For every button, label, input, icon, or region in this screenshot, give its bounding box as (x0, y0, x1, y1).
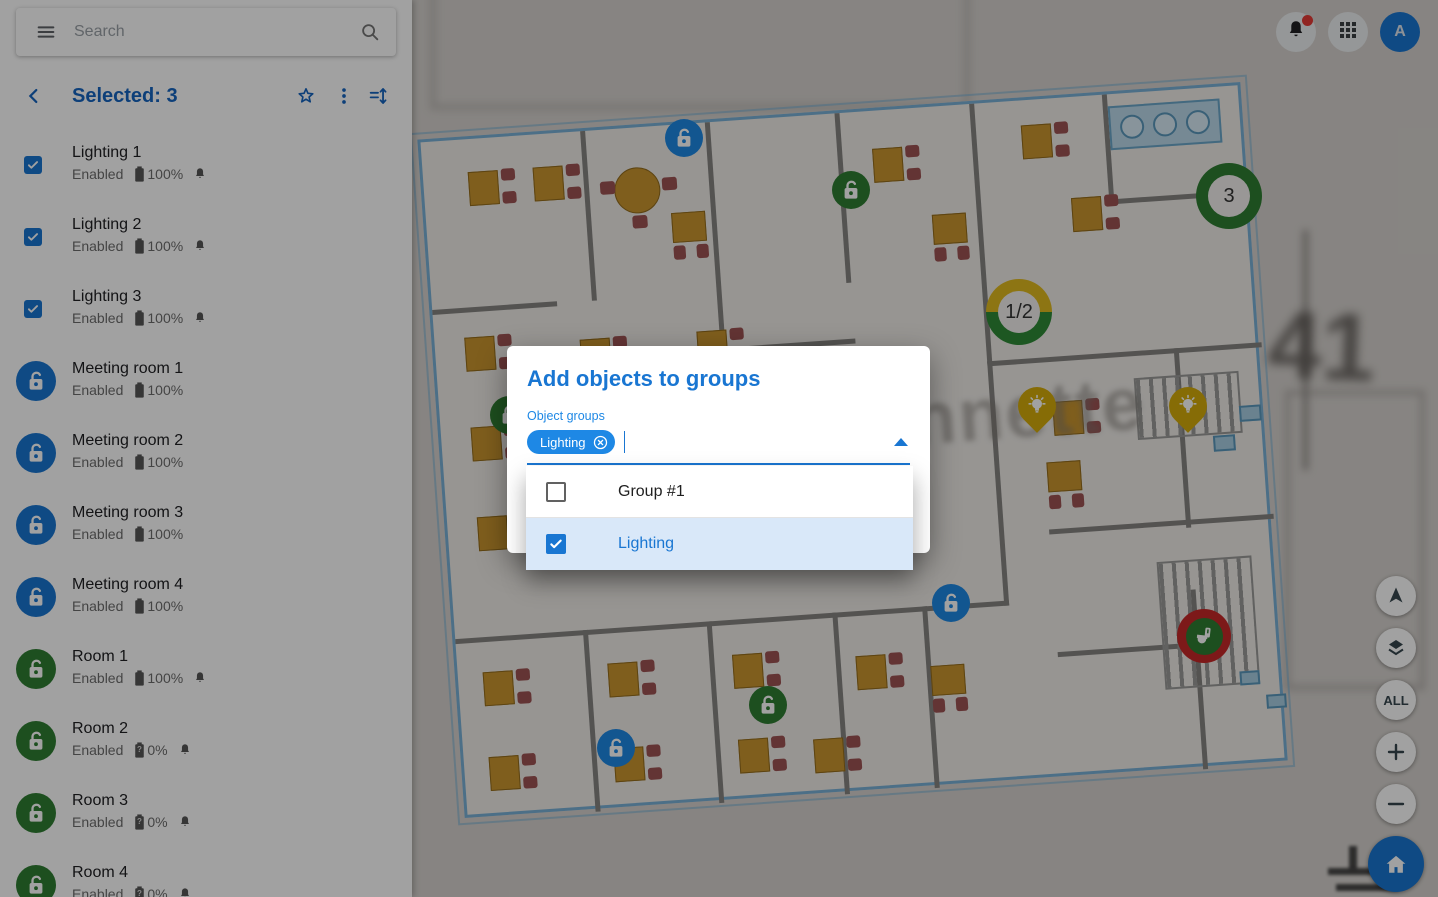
group-options: Group #1Lighting (526, 466, 913, 570)
group-option[interactable]: Group #1 (526, 466, 913, 518)
group-chip-lighting[interactable]: Lighting (527, 430, 615, 454)
option-checkbox[interactable] (546, 534, 566, 554)
group-chips: Lighting (527, 428, 625, 456)
object-groups-field-label: Object groups (527, 409, 605, 423)
chip-remove-icon[interactable] (592, 434, 609, 451)
app-window: 41 nnette 31/2 ALL (0, 0, 1438, 897)
chip-label: Lighting (540, 435, 586, 450)
field-underline (527, 463, 910, 465)
text-cursor (624, 431, 626, 453)
dialog-title: Add objects to groups (527, 366, 760, 392)
option-label: Lighting (618, 535, 674, 553)
option-checkbox[interactable] (546, 482, 566, 502)
collapse-caret-icon[interactable] (894, 438, 908, 446)
group-option[interactable]: Lighting (526, 518, 913, 570)
option-label: Group #1 (618, 483, 685, 501)
